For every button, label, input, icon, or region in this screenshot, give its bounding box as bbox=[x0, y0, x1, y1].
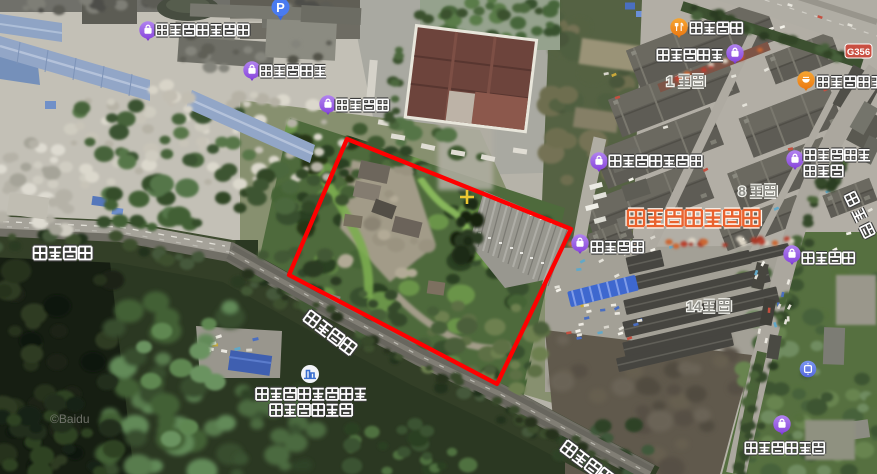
svg-text:8: 8 bbox=[738, 183, 746, 199]
svg-text:©Baidu: ©Baidu bbox=[50, 412, 90, 426]
svg-text:G356: G356 bbox=[847, 47, 870, 58]
svg-text:1: 1 bbox=[666, 73, 674, 89]
svg-text:P: P bbox=[276, 0, 285, 15]
svg-text:14: 14 bbox=[686, 298, 702, 314]
